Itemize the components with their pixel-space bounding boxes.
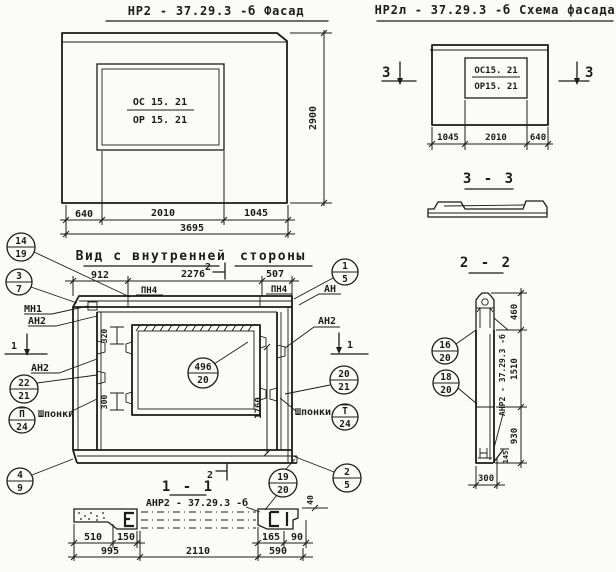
section-2-2-dim-300: 300 (478, 474, 494, 484)
section-2-2-title: 2 - 2 (460, 255, 512, 271)
inner-bottom-bar-lines (77, 450, 297, 463)
callout-2-5-bottom: 5 (344, 480, 350, 491)
section-1-1-dashed-middle (141, 512, 256, 528)
facade-window-mark-bottom: ОР 15. 21 (133, 115, 187, 126)
section-1-1-dim-40-lines (302, 505, 328, 511)
callout-p-24-bottom: 24 (16, 422, 28, 433)
callout-p-24-top: П (19, 409, 25, 420)
callout-22-21-top: 22 (18, 378, 29, 389)
label-an2-right-leader (285, 327, 340, 348)
scheme-title: НР2л - 37.29.3 -б Схема фасада (375, 3, 616, 17)
section-2-2-panel-mark: АНР2 - 37.29.3 -б (497, 334, 507, 416)
section-3-3-profile-line (444, 205, 524, 206)
scheme-window-mark-bottom: ОР15. 21 (474, 82, 517, 92)
callout-18-20-top: 18 (440, 372, 452, 383)
callout-496-20-top: 496 (194, 362, 211, 373)
scheme-section-left-label: 3 (382, 65, 392, 81)
inner-shponki-tabs (97, 336, 285, 404)
callout-16-20-top: 16 (439, 340, 451, 351)
label-mn1: МН1 (24, 304, 42, 315)
callout-18-20-bottom: 20 (440, 385, 452, 396)
section-2-2-dim-930: 930 (510, 428, 520, 444)
callout-3-7-leader (31, 287, 77, 303)
facade-dim-extensions (66, 151, 288, 238)
label-shponki-right: Шпонки (295, 407, 331, 418)
inner-dim-507: 507 (266, 269, 284, 280)
section-1-marker-left-arrowhead (24, 349, 30, 356)
callout-14-19-top: 14 (15, 236, 27, 247)
callout-18-20-leader (458, 388, 477, 404)
inner-dim-320-lines (110, 327, 124, 344)
label-pn4-right: ПН4 (271, 285, 288, 295)
section-1-1-dim-995: 995 (101, 546, 119, 557)
section-2-2-dim-1510: 1510 (510, 358, 520, 380)
callout-4-9-bottom: 9 (17, 483, 23, 494)
label-an2-left-lower: АН2 (31, 363, 49, 374)
callout-16-20-leader (456, 330, 476, 344)
section-1-marker-left-label: 1 (11, 341, 17, 352)
inner-dim-300: 300 (100, 395, 109, 410)
inner-dim-1760: 1760 (254, 397, 264, 419)
section-2-2-dim-145: 145 (502, 451, 510, 464)
section-1-1-title: 1 - 1 (162, 479, 214, 495)
facade-dim-3695: 3695 (180, 223, 204, 234)
section-2-2-dim-lines (491, 288, 527, 468)
inner-top-rail (73, 296, 292, 307)
scheme-dim-1045: 1045 (437, 133, 459, 143)
callout-496-20-leader (214, 342, 248, 364)
facade-window-mark-top: ОС 15. 21 (133, 97, 187, 108)
scheme-section-right-label: 3 (585, 65, 595, 81)
inner-title-2: стороны (240, 249, 306, 264)
facade-dim-2010: 2010 (151, 208, 175, 219)
callout-1-5-bottom: 5 (342, 274, 348, 285)
label-an-right: АН (324, 284, 336, 295)
section-1-1-dim-510: 510 (84, 532, 102, 543)
section-1-1-dim-2110: 2110 (186, 546, 210, 557)
section-2-marker-bottom-symbol (216, 463, 227, 480)
inner-dim-300-lines (110, 393, 124, 410)
scheme-dim-2010: 2010 (485, 133, 507, 143)
section-1-marker-right-label: 1 (347, 340, 353, 351)
section-1-1-right-anchor-bracket (270, 512, 287, 526)
inner-top-rail-details (79, 296, 292, 307)
section-1-1-dim-590: 590 (269, 546, 287, 557)
callout-22-21-bottom: 21 (18, 391, 30, 402)
callout-2-5-leader (293, 456, 334, 472)
inner-dim-2276: 2276 (181, 269, 205, 280)
section-2-2-anchor-loop (482, 299, 488, 305)
section-3-3-title: 3 - 3 (463, 171, 515, 187)
facade-dim-640: 640 (75, 209, 93, 220)
section-1-1-left-detail-dots (78, 512, 105, 521)
inner-wall-inner-lines (78, 307, 288, 462)
label-shponki-left: Шпонки (38, 409, 74, 420)
drawing-sheet: НР2 - 37.29.3 -б Фасад ОС 15. 21 ОР 15. … (0, 0, 616, 572)
callout-20-21-top: 20 (338, 369, 350, 380)
callout-3-7-top: 3 (16, 271, 22, 282)
callout-2-5-top: 2 (344, 467, 350, 478)
section-1-1-left-anchor-bracket (125, 513, 134, 526)
section-3-3: 3 - 3 (428, 171, 547, 217)
callout-3-7-bottom: 7 (16, 284, 22, 295)
callout-16-20-bottom: 20 (439, 353, 451, 364)
callout-4-9-leader (32, 459, 73, 475)
inner-dim-1760-lines (264, 344, 270, 456)
section-3-3-profile (428, 201, 547, 217)
section-2-2-body-outline (476, 330, 494, 463)
label-an-right-leader (299, 294, 341, 305)
panel-drawing-svg: НР2 - 37.29.3 -б Фасад ОС 15. 21 ОР 15. … (0, 0, 616, 572)
facade-view: НР2 - 37.29.3 -б Фасад ОС 15. 21 ОР 15. … (60, 4, 332, 238)
scheme-view: НР2л - 37.29.3 -б Схема фасада ОС15. 21 … (375, 3, 616, 150)
section-2-2-dim-460: 460 (510, 304, 520, 320)
inner-bottom-bar (73, 450, 297, 463)
section-1-1-mark: АНР2 - 37.29.3 -б (146, 497, 248, 509)
callout-496-20-bottom: 20 (197, 375, 209, 386)
callout-4-9-top: 4 (17, 470, 23, 481)
inner-dim-912: 912 (91, 270, 109, 281)
label-shponki-left-leader (70, 399, 97, 412)
inner-view: Вид с внутренней стороны 2 912 2276 507 … (5, 233, 368, 510)
section-1-1-dim-150: 150 (117, 532, 135, 543)
facade-height-dim: 2900 (308, 106, 319, 130)
callout-19-20-top: 19 (277, 472, 289, 483)
inner-mn1-tab (88, 302, 97, 310)
label-an2-right: АН2 (318, 316, 336, 327)
callout-t-24-top: Т (342, 406, 348, 417)
callout-1-5-top: 1 (342, 261, 348, 272)
callout-19-20-bottom: 20 (277, 485, 289, 496)
section-2-2-anchor-detail-lines (476, 308, 494, 328)
section-1-marker-right-arrowhead (336, 347, 342, 354)
section-1-1-dim-165: 165 (262, 532, 280, 543)
callout-20-21-bottom: 21 (338, 382, 350, 393)
label-an2-left-upper: АН2 (28, 316, 46, 327)
scheme-dim-640: 640 (530, 133, 546, 143)
section-2-2: 2 - 2 АНР2 - 37.29.3 -б 460 1510 930 145… (432, 255, 527, 489)
inner-title-1: Вид с внутренней (76, 249, 227, 264)
callout-22-21-leader (37, 375, 97, 383)
section-1-1-dim-90: 90 (291, 532, 303, 543)
section-1-1-dim-40: 40 (306, 495, 315, 505)
inner-dim-320: 320 (100, 329, 109, 344)
section-1-1: 1 - 1 АНР2 - 37.29.3 -б 40 510 150 165 9… (68, 479, 328, 561)
callout-t-24-bottom: 24 (339, 419, 351, 430)
scheme-window-mark-top: ОС15. 21 (474, 66, 517, 76)
label-pn4-left: ПН4 (141, 286, 158, 296)
section-2-marker-top-label: 2 (205, 262, 211, 273)
scheme-window (465, 58, 527, 98)
facade-dim-1045: 1045 (244, 208, 268, 219)
callout-14-19-bottom: 19 (15, 249, 27, 260)
facade-title: НР2 - 37.29.3 -б Фасад (128, 4, 305, 18)
